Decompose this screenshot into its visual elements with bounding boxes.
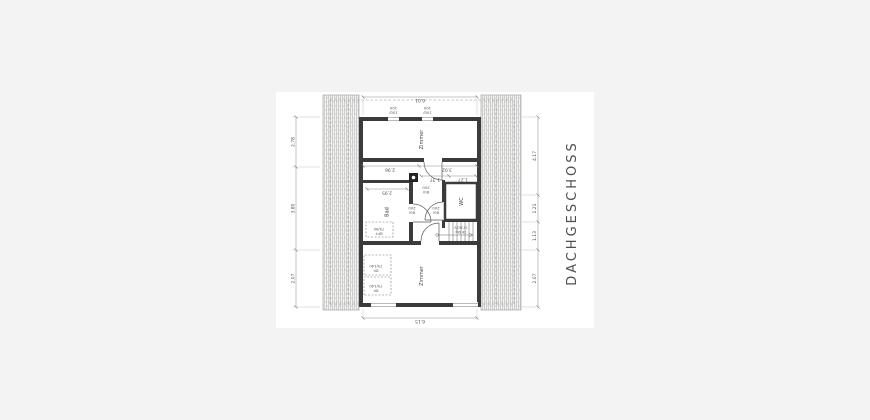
roof-hatch-bottom — [481, 95, 521, 310]
floor-plan-drawing: 2.07 3.80 2.78 2.07 1.13 1.21 4.17 6.15 … — [276, 92, 594, 328]
dim-outer-left: 6.15 — [415, 318, 425, 324]
window-opening-right-2 — [422, 116, 433, 122]
window-opening-left-2 — [453, 302, 478, 308]
floor-plan-rotated-container: 2.07 3.80 2.78 2.07 1.13 1.21 4.17 6.15 … — [276, 92, 594, 328]
room-label-wc: WC — [459, 197, 465, 206]
room-label-bad: Bad — [385, 207, 391, 217]
dim-bottom-2: 1.13 — [532, 231, 538, 241]
door-size-label-1b: 200 — [408, 206, 416, 211]
room-label-zimmer-2: Zimmer — [419, 129, 425, 150]
stair-arrow-start — [436, 234, 439, 237]
plan-title: DACHGESCHOSS — [565, 140, 580, 285]
dim-corridor-1: 1.37 — [430, 177, 440, 183]
window-size-label-2b: 100 — [423, 106, 431, 111]
door-size-label-3b: 200 — [422, 186, 430, 191]
dim-top-3: 2.78 — [290, 137, 296, 147]
door-swing-zimmer-left — [421, 223, 439, 241]
chimney — [409, 173, 418, 182]
dim-bottom-4: 4.17 — [532, 151, 538, 161]
image-viewer-background: 2.07 3.80 2.78 2.07 1.13 1.21 4.17 6.15 … — [0, 0, 870, 420]
dim-top-1: 2.07 — [290, 273, 296, 283]
stairs-label-b: 17,6/29 — [454, 226, 467, 230]
dim-corridor-2: 1.27 — [458, 177, 468, 183]
room-label-zimmer-1: Zimmer — [419, 265, 425, 286]
dim-bad: 2.95 — [382, 190, 392, 196]
dim-mid-2: 3.02 — [442, 167, 452, 173]
skylight-label-bad-b: 75/90 — [373, 227, 385, 232]
dim-outer-right: 6.01 — [415, 97, 425, 103]
skylight-label-1b: 75/140 — [369, 284, 383, 289]
dim-mid-1: 2.96 — [385, 167, 395, 173]
skylight-label-2b: 75/140 — [369, 264, 383, 269]
dim-bottom-3: 1.21 — [532, 203, 538, 213]
dim-top-2: 3.80 — [290, 203, 296, 213]
door-size-label-2b: 200 — [432, 206, 440, 211]
stairs-label-a: 16 Stg — [455, 230, 466, 234]
window-opening-right-1 — [388, 116, 399, 122]
window-opening-left-1 — [371, 302, 396, 308]
roof-hatch-top — [323, 95, 359, 310]
window-size-label-1b: 100 — [389, 106, 397, 111]
dim-bottom-1: 2.07 — [532, 273, 538, 283]
